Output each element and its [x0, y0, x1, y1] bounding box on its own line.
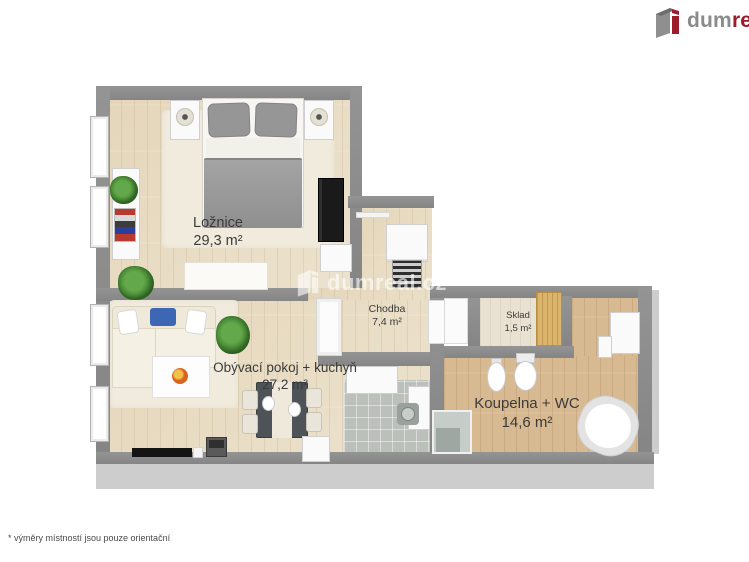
room-name: Koupelna + WC — [442, 394, 612, 413]
logo-text-red: real — [732, 9, 749, 32]
room-label-koupelna: Koupelna + WC 14,6 m² — [442, 394, 612, 432]
bathroom-cabinet-small — [598, 336, 612, 358]
living-hallway-door — [316, 298, 342, 356]
watermark-text: dumreal.cz — [327, 270, 447, 296]
logo-wordmark: dumreal — [687, 6, 749, 36]
fruit-bowl — [172, 368, 188, 384]
room-label-loznice: Ložnice 29,3 m² — [158, 214, 278, 250]
floorplan-page: dumreal — [0, 0, 749, 562]
room-label-chodba: Chodba 7,4 m² — [347, 303, 427, 329]
bidet — [487, 362, 506, 392]
wall-storage-bottom — [444, 346, 574, 358]
bedroom-bench-mat — [184, 262, 268, 290]
room-name: Chodba — [347, 303, 427, 316]
sofa-pillow-white-left — [116, 309, 139, 336]
wall-right — [638, 286, 652, 454]
sofa-chaise — [112, 328, 156, 388]
room-label-obyvaci: Obývací pokoj + kuchyň 27,2 m² — [195, 359, 375, 393]
room-area: 14,6 m² — [442, 413, 612, 432]
plate-right — [288, 402, 301, 417]
livingroom-plant — [216, 316, 250, 354]
room-area: 1,5 m² — [483, 323, 553, 336]
dumreal-logo: dumreal — [655, 6, 749, 38]
pillow-left — [207, 102, 250, 137]
livingroom-tv — [132, 448, 192, 457]
plant-on-dresser — [110, 176, 138, 204]
sofa-pillow-blue — [150, 308, 176, 326]
table-lamp-left — [176, 108, 194, 126]
washing-machine — [610, 312, 640, 354]
speaker-top — [209, 440, 224, 448]
bedroom-tv — [318, 178, 344, 242]
bathroom-door — [444, 298, 468, 344]
sink-basin — [401, 407, 415, 421]
dining-chair-right-2 — [306, 412, 322, 432]
logo-text-gray: dum — [687, 9, 732, 32]
wall-right-face — [652, 290, 659, 454]
wall-hallway-top — [348, 196, 434, 208]
room-name: Ložnice — [158, 214, 278, 232]
window-living-1 — [90, 304, 109, 366]
table-lamp-right — [310, 108, 328, 126]
pillow-right — [254, 102, 297, 137]
window-bedroom-2 — [90, 186, 109, 248]
wall-storage-right — [562, 296, 572, 346]
room-area: 29,3 m² — [158, 232, 278, 250]
hallway-shelf — [356, 212, 390, 218]
books-on-shelf — [114, 208, 136, 242]
plate-left — [262, 396, 275, 411]
disclaimer-note: * výměry místností jsou pouze orientační — [8, 533, 170, 543]
watermark: dumreal.cz — [297, 268, 447, 297]
watermark-building-icon — [297, 268, 320, 297]
dining-chair-left-1 — [242, 390, 258, 410]
wall-storage-left — [468, 298, 480, 346]
room-area: 27,2 m² — [195, 376, 375, 393]
kitchen-lowboard — [302, 436, 330, 462]
dumreal-building-icon — [655, 6, 681, 38]
room-name: Sklad — [483, 310, 553, 323]
bedroom-plant — [118, 266, 154, 300]
window-living-2 — [90, 386, 109, 442]
wardrobe — [386, 224, 428, 262]
room-area: 7,4 m² — [347, 316, 427, 329]
room-name: Obývací pokoj + kuchyň — [195, 359, 375, 376]
dining-chair-left-2 — [242, 414, 258, 434]
toilet — [514, 361, 537, 391]
window-bedroom-1 — [90, 116, 109, 178]
tv-stand-end — [193, 447, 203, 458]
room-label-sklad: Sklad 1,5 m² — [483, 310, 553, 335]
hallway-bathroom-door — [428, 300, 445, 344]
wall-bottom-face — [96, 464, 654, 489]
sofa-pillow-white-right — [184, 309, 207, 336]
